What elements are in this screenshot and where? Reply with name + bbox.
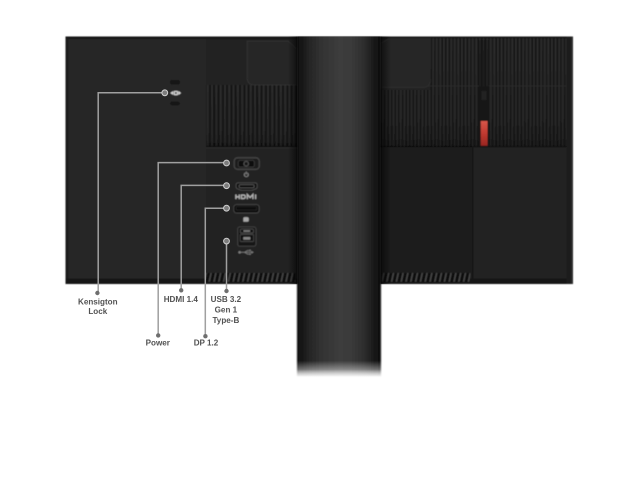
svg-text:USB 3.2: USB 3.2 (211, 295, 242, 304)
svg-text:Power: Power (146, 338, 171, 347)
svg-text:Kensigton: Kensigton (78, 297, 118, 306)
svg-text:Gen 1: Gen 1 (215, 306, 238, 315)
svg-text:Type-B: Type-B (212, 316, 239, 325)
svg-text:DP 1.2: DP 1.2 (194, 338, 219, 347)
svg-text:HDMI 1.4: HDMI 1.4 (164, 295, 199, 304)
svg-text:Lock: Lock (88, 307, 107, 316)
